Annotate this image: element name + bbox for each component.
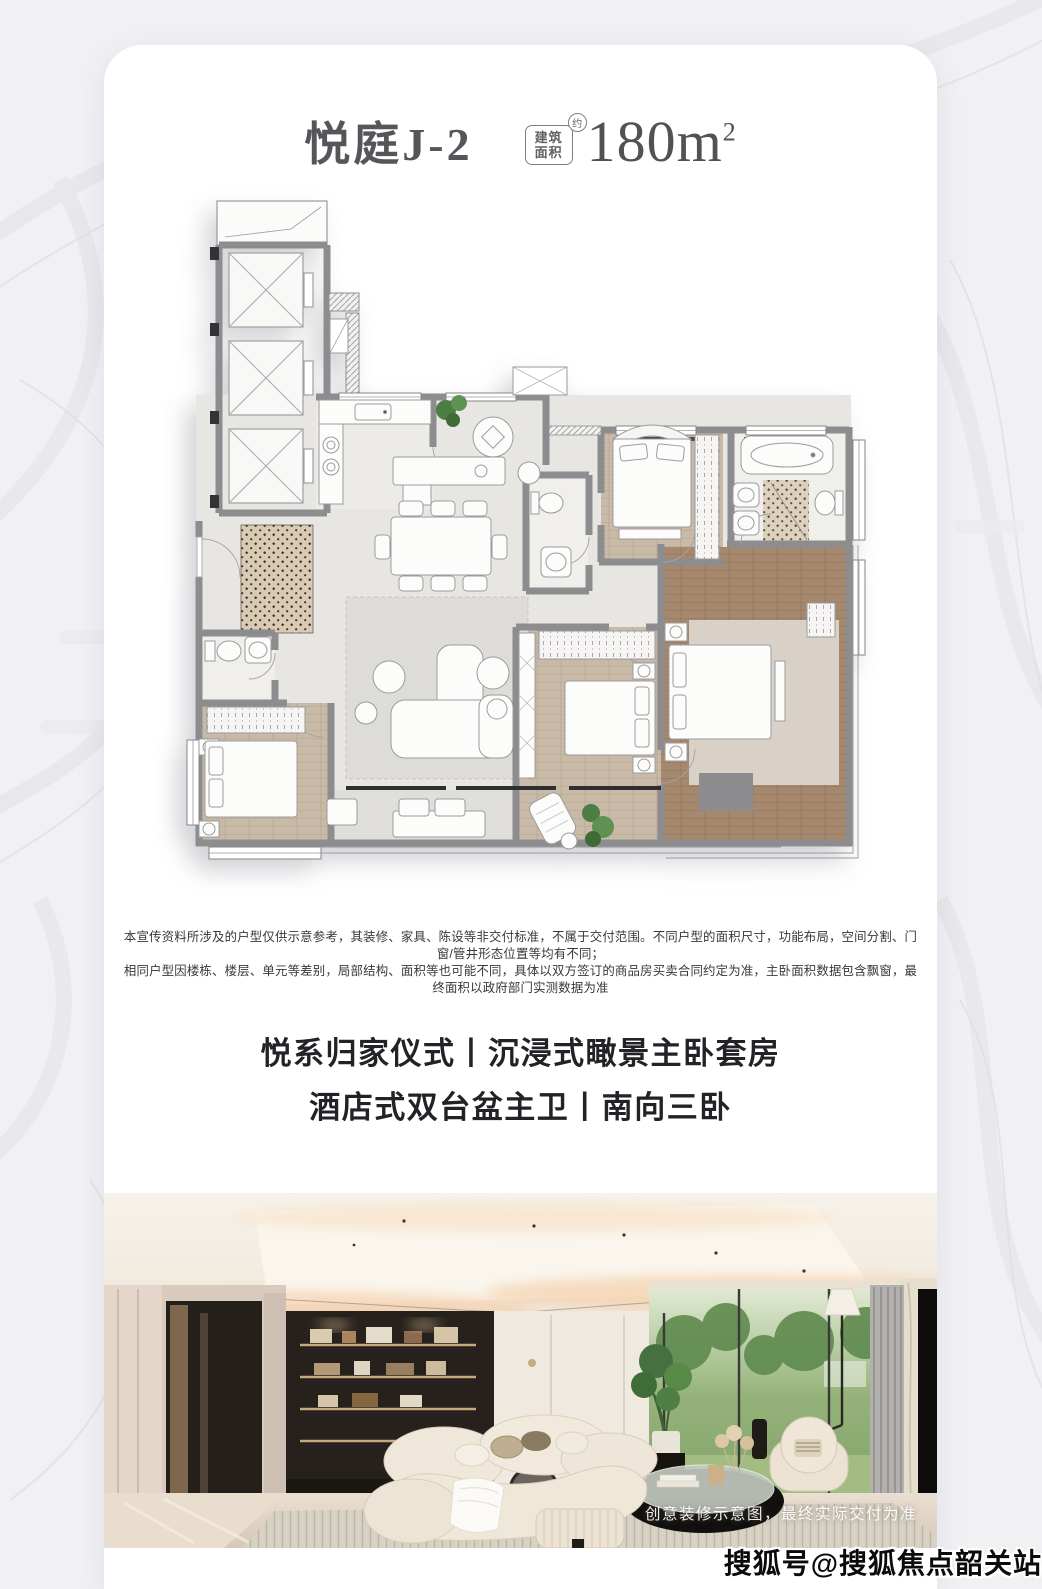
headline-line-2: 酒店式双台盆主卫丨南向三卧 [104, 1081, 937, 1135]
tv-screen [918, 1289, 937, 1515]
content-card: 悦庭J-2 建筑 面积 约 180m2 [104, 45, 937, 1589]
throw-blanket [450, 1478, 504, 1532]
pouf [373, 661, 405, 693]
curtain [870, 1285, 904, 1519]
approx-circle-badge: 约 [568, 113, 587, 132]
area-badge: 建筑 面积 约 [525, 125, 573, 165]
balcony-wall-block [699, 773, 753, 811]
floor-plan-figure [141, 195, 901, 895]
sohu-watermark: 搜狐号@搜狐焦点韶关站 [724, 1542, 1042, 1582]
area-sup: 2 [723, 117, 737, 146]
bathtub [741, 436, 833, 474]
area-badge-line1: 建筑 [535, 130, 563, 145]
header: 悦庭J-2 建筑 面积 约 180m2 [104, 103, 937, 179]
side-stool [752, 1419, 767, 1459]
area-value: 180m2 [587, 108, 737, 175]
unit-name: 悦庭J-2 [304, 108, 472, 174]
photo-caption: 创意装修示意图，最终实际交付为准 [645, 1502, 917, 1524]
disclaimer-text: 本宣传资料所涉及的户型仅供示意参考，其装修、家具、陈设等非交付标准，不属于交付范… [122, 929, 920, 997]
disclaimer-line-2: 相同户型因楼栋、楼层、单元等差别，局部结构、面积等也可能不同，具体以双方签订的商… [122, 963, 920, 997]
foyer-rug [241, 525, 313, 633]
area-badge-line2: 面积 [535, 145, 563, 160]
sliding-door-track [346, 786, 661, 790]
shaft-hatch [329, 293, 359, 311]
ottoman [536, 1509, 624, 1548]
headline: 悦系归家仪式丨沉浸式瞰景主卧套房 酒店式双台盆主卫丨南向三卧 [104, 1027, 937, 1135]
headline-line-1: 悦系归家仪式丨沉浸式瞰景主卧套房 [104, 1027, 937, 1081]
interior-photo: 创意装修示意图，最终实际交付为准 [104, 1193, 937, 1548]
tea-table [473, 417, 513, 457]
dining-table [391, 517, 491, 575]
disclaimer-line-1: 本宣传资料所涉及的户型仅供示意参考，其装修、家具、陈设等非交付标准，不属于交付范… [122, 929, 920, 963]
